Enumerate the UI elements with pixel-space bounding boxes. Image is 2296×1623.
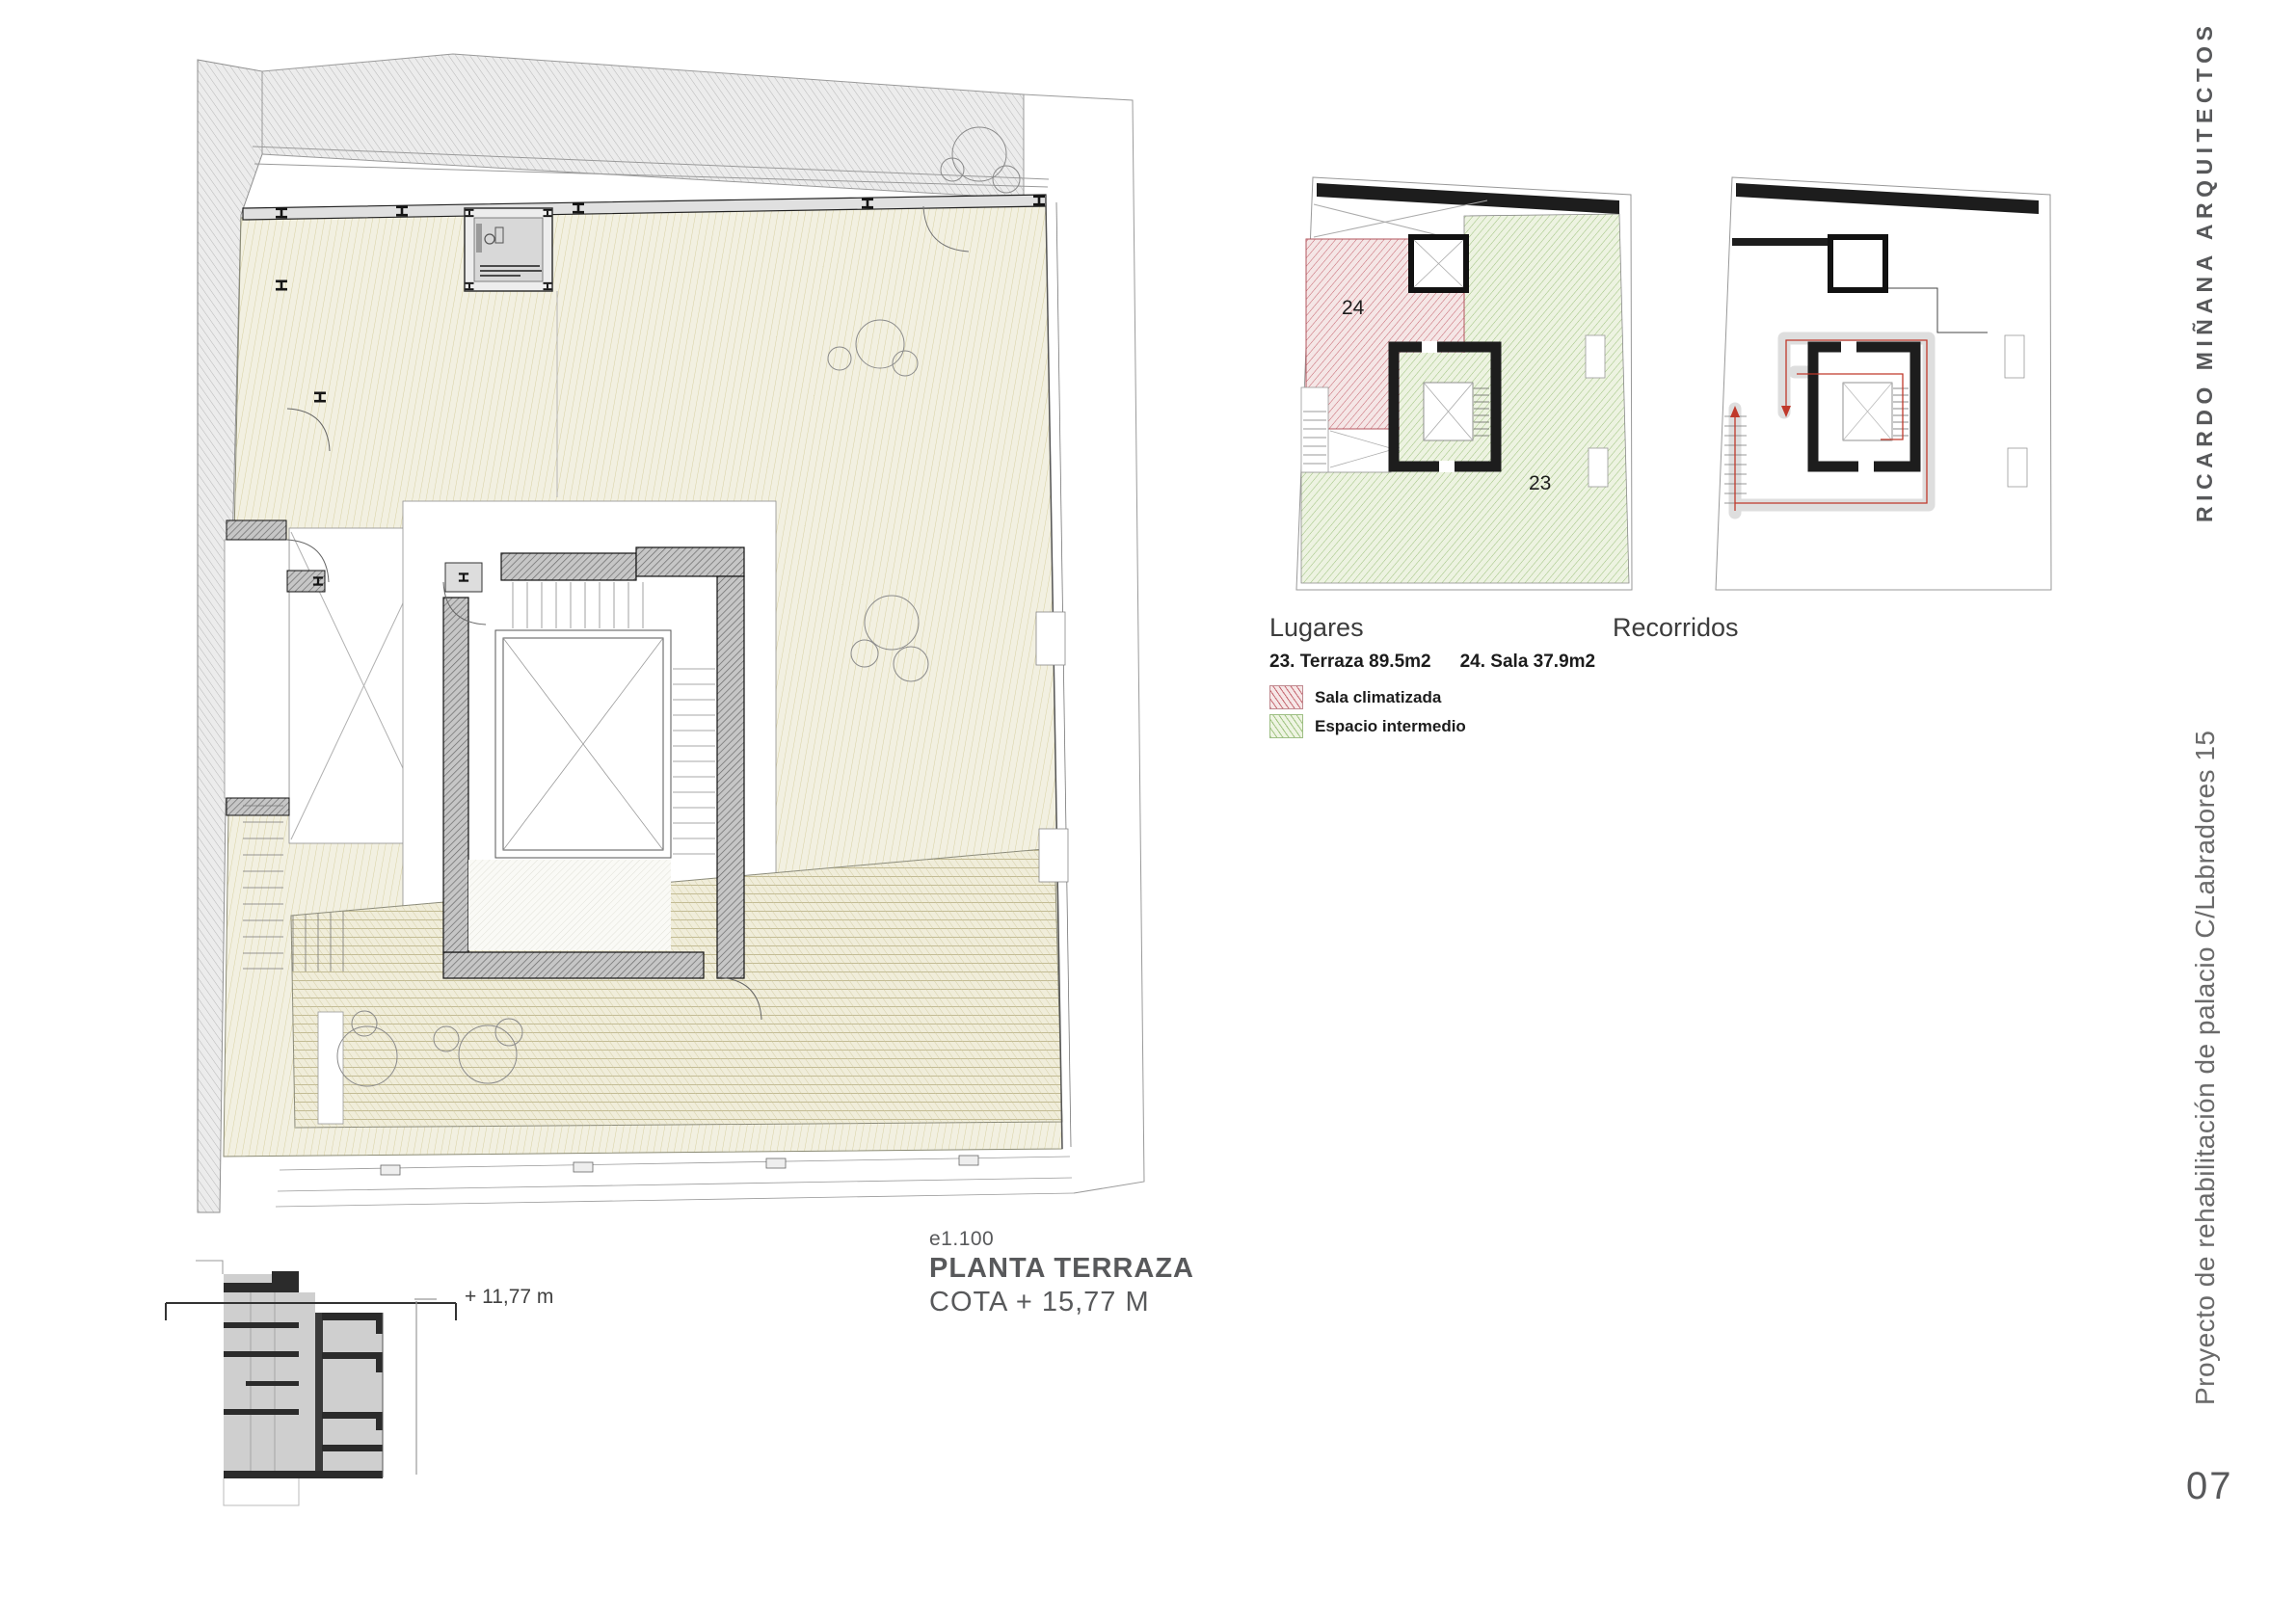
recorridos-mini-plan: [1716, 177, 2051, 590]
title-block: e1.100 PLANTA TERRAZA COTA + 15,77 M: [929, 1228, 1194, 1318]
legend-swatch-green-hatch: [1269, 714, 1303, 738]
lugares-title: Lugares: [1269, 613, 1364, 643]
lugares-core: [1394, 341, 1496, 472]
area-sala: 24. Sala 37.9m2: [1460, 652, 1596, 672]
project-name: Proyecto de rehabilitación de palacio C/…: [2190, 731, 2221, 1405]
lugares-stairs: [1301, 387, 1328, 472]
drawing-canvas: [0, 0, 2296, 1623]
section-level-mark: + 11,77 m: [465, 1286, 553, 1309]
studio-name: RICARDO MIÑANA ARQUITECTOS: [2192, 21, 2218, 522]
room-number-sala: 24: [1342, 297, 1364, 320]
legend-label-climatizada: Sala climatizada: [1315, 688, 1441, 707]
sheet-number: 07: [2186, 1465, 2233, 1508]
room-number-terraza: 23: [1529, 472, 1551, 495]
lugares-elevator: [1411, 237, 1466, 290]
drawing-title: PLANTA TERRAZA: [929, 1253, 1194, 1285]
legend-label-intermedio: Espacio intermedio: [1315, 717, 1466, 736]
drawing-scale: e1.100: [929, 1228, 1194, 1251]
legend-row-intermedio: Espacio intermedio: [1269, 714, 1466, 738]
main-floor-plan: [198, 54, 1144, 1212]
lugares-mini-plan: [1296, 177, 1632, 590]
area-terraza: 23. Terraza 89.5m2: [1269, 652, 1431, 672]
areas-line: 23. Terraza 89.5m224. Sala 37.9m2: [1269, 652, 1624, 673]
eaves-lines: [276, 1156, 1074, 1207]
legend-swatch-red-hatch: [1269, 685, 1303, 709]
recorridos-core: [1813, 341, 1915, 472]
legend-row-climatizada: Sala climatizada: [1269, 685, 1441, 709]
drawing-level: COTA + 15,77 M: [929, 1287, 1194, 1318]
recorridos-title: Recorridos: [1613, 613, 1739, 643]
section-drawing: [166, 1261, 456, 1505]
